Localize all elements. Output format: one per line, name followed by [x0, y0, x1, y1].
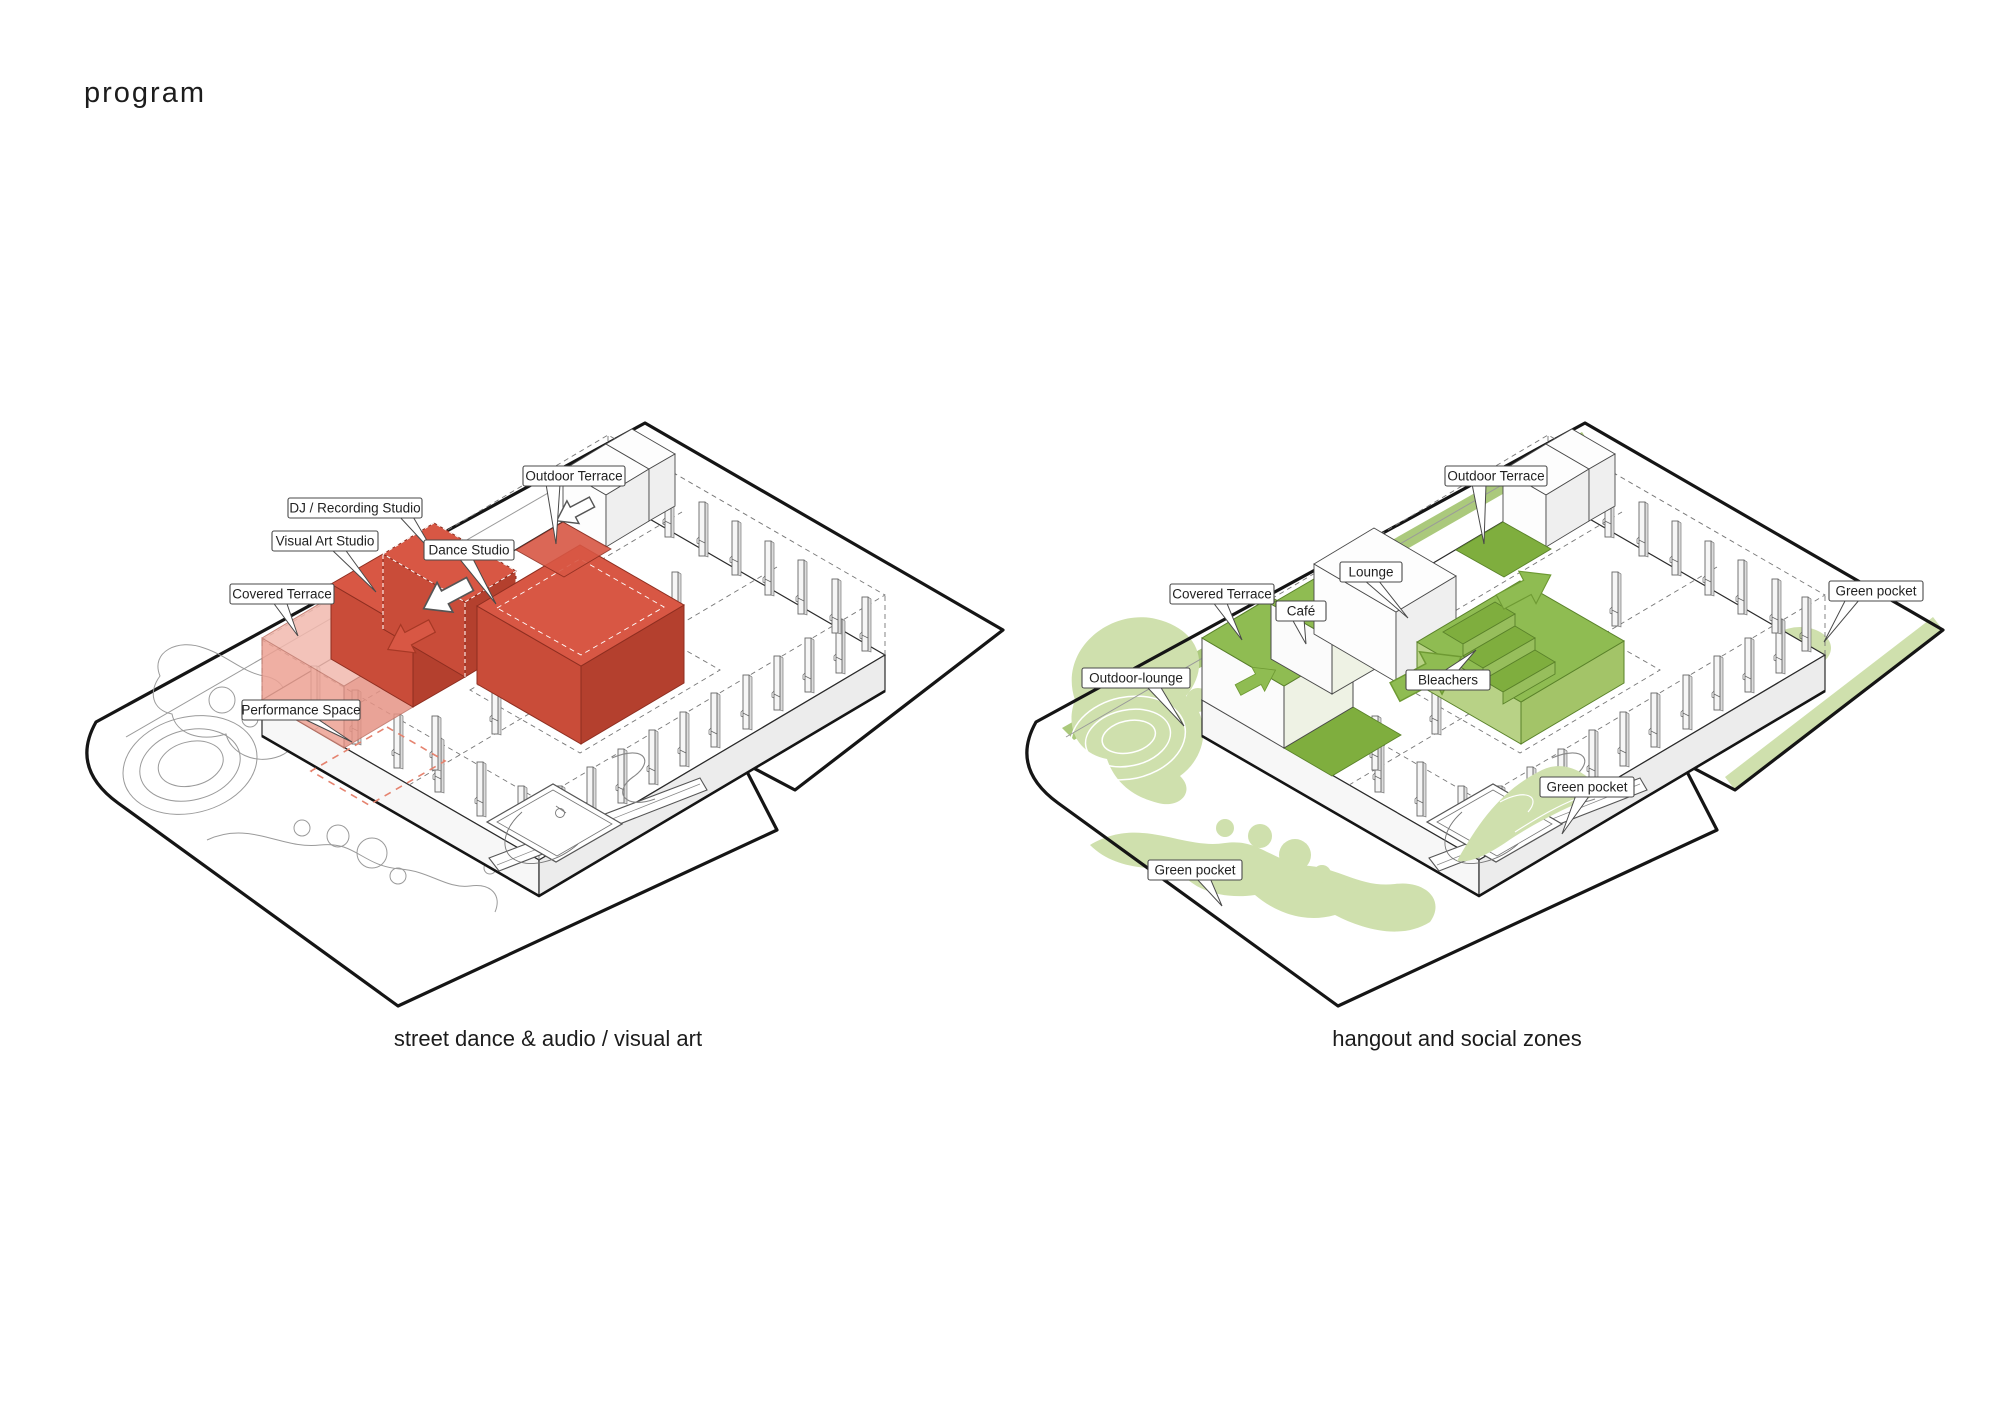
program-diagram-canvas: program [0, 0, 2000, 1414]
svg-text:Lounge: Lounge [1348, 565, 1393, 580]
caption-left: street dance & audio / visual art [394, 1026, 702, 1051]
svg-text:Outdoor Terrace: Outdoor Terrace [525, 469, 622, 484]
svg-text:Covered Terrace: Covered Terrace [232, 587, 332, 602]
svg-text:Green pocket: Green pocket [1546, 780, 1627, 795]
svg-text:Green pocket: Green pocket [1835, 584, 1916, 599]
panel-right: Outdoor Terrace Covered Terrace Café Lou… [1027, 423, 1943, 1051]
svg-text:DJ / Recording Studio: DJ / Recording Studio [289, 501, 420, 516]
program-page: program [0, 0, 2000, 1414]
caption-right: hangout and social zones [1332, 1026, 1582, 1051]
svg-text:Dance Studio: Dance Studio [428, 543, 509, 558]
svg-text:Green pocket: Green pocket [1154, 863, 1235, 878]
panel-left: DJ / Recording Studio Visual Art Studio … [87, 423, 1003, 1051]
svg-text:Performance Space: Performance Space [241, 703, 360, 718]
svg-text:Covered Terrace: Covered Terrace [1172, 587, 1272, 602]
page-title: program [84, 77, 206, 109]
svg-text:Outdoor-lounge: Outdoor-lounge [1089, 671, 1183, 686]
svg-text:Outdoor Terrace: Outdoor Terrace [1447, 469, 1544, 484]
svg-text:Bleachers: Bleachers [1418, 673, 1478, 688]
svg-text:Visual Art Studio: Visual Art Studio [276, 534, 375, 549]
svg-text:Café: Café [1287, 604, 1316, 619]
